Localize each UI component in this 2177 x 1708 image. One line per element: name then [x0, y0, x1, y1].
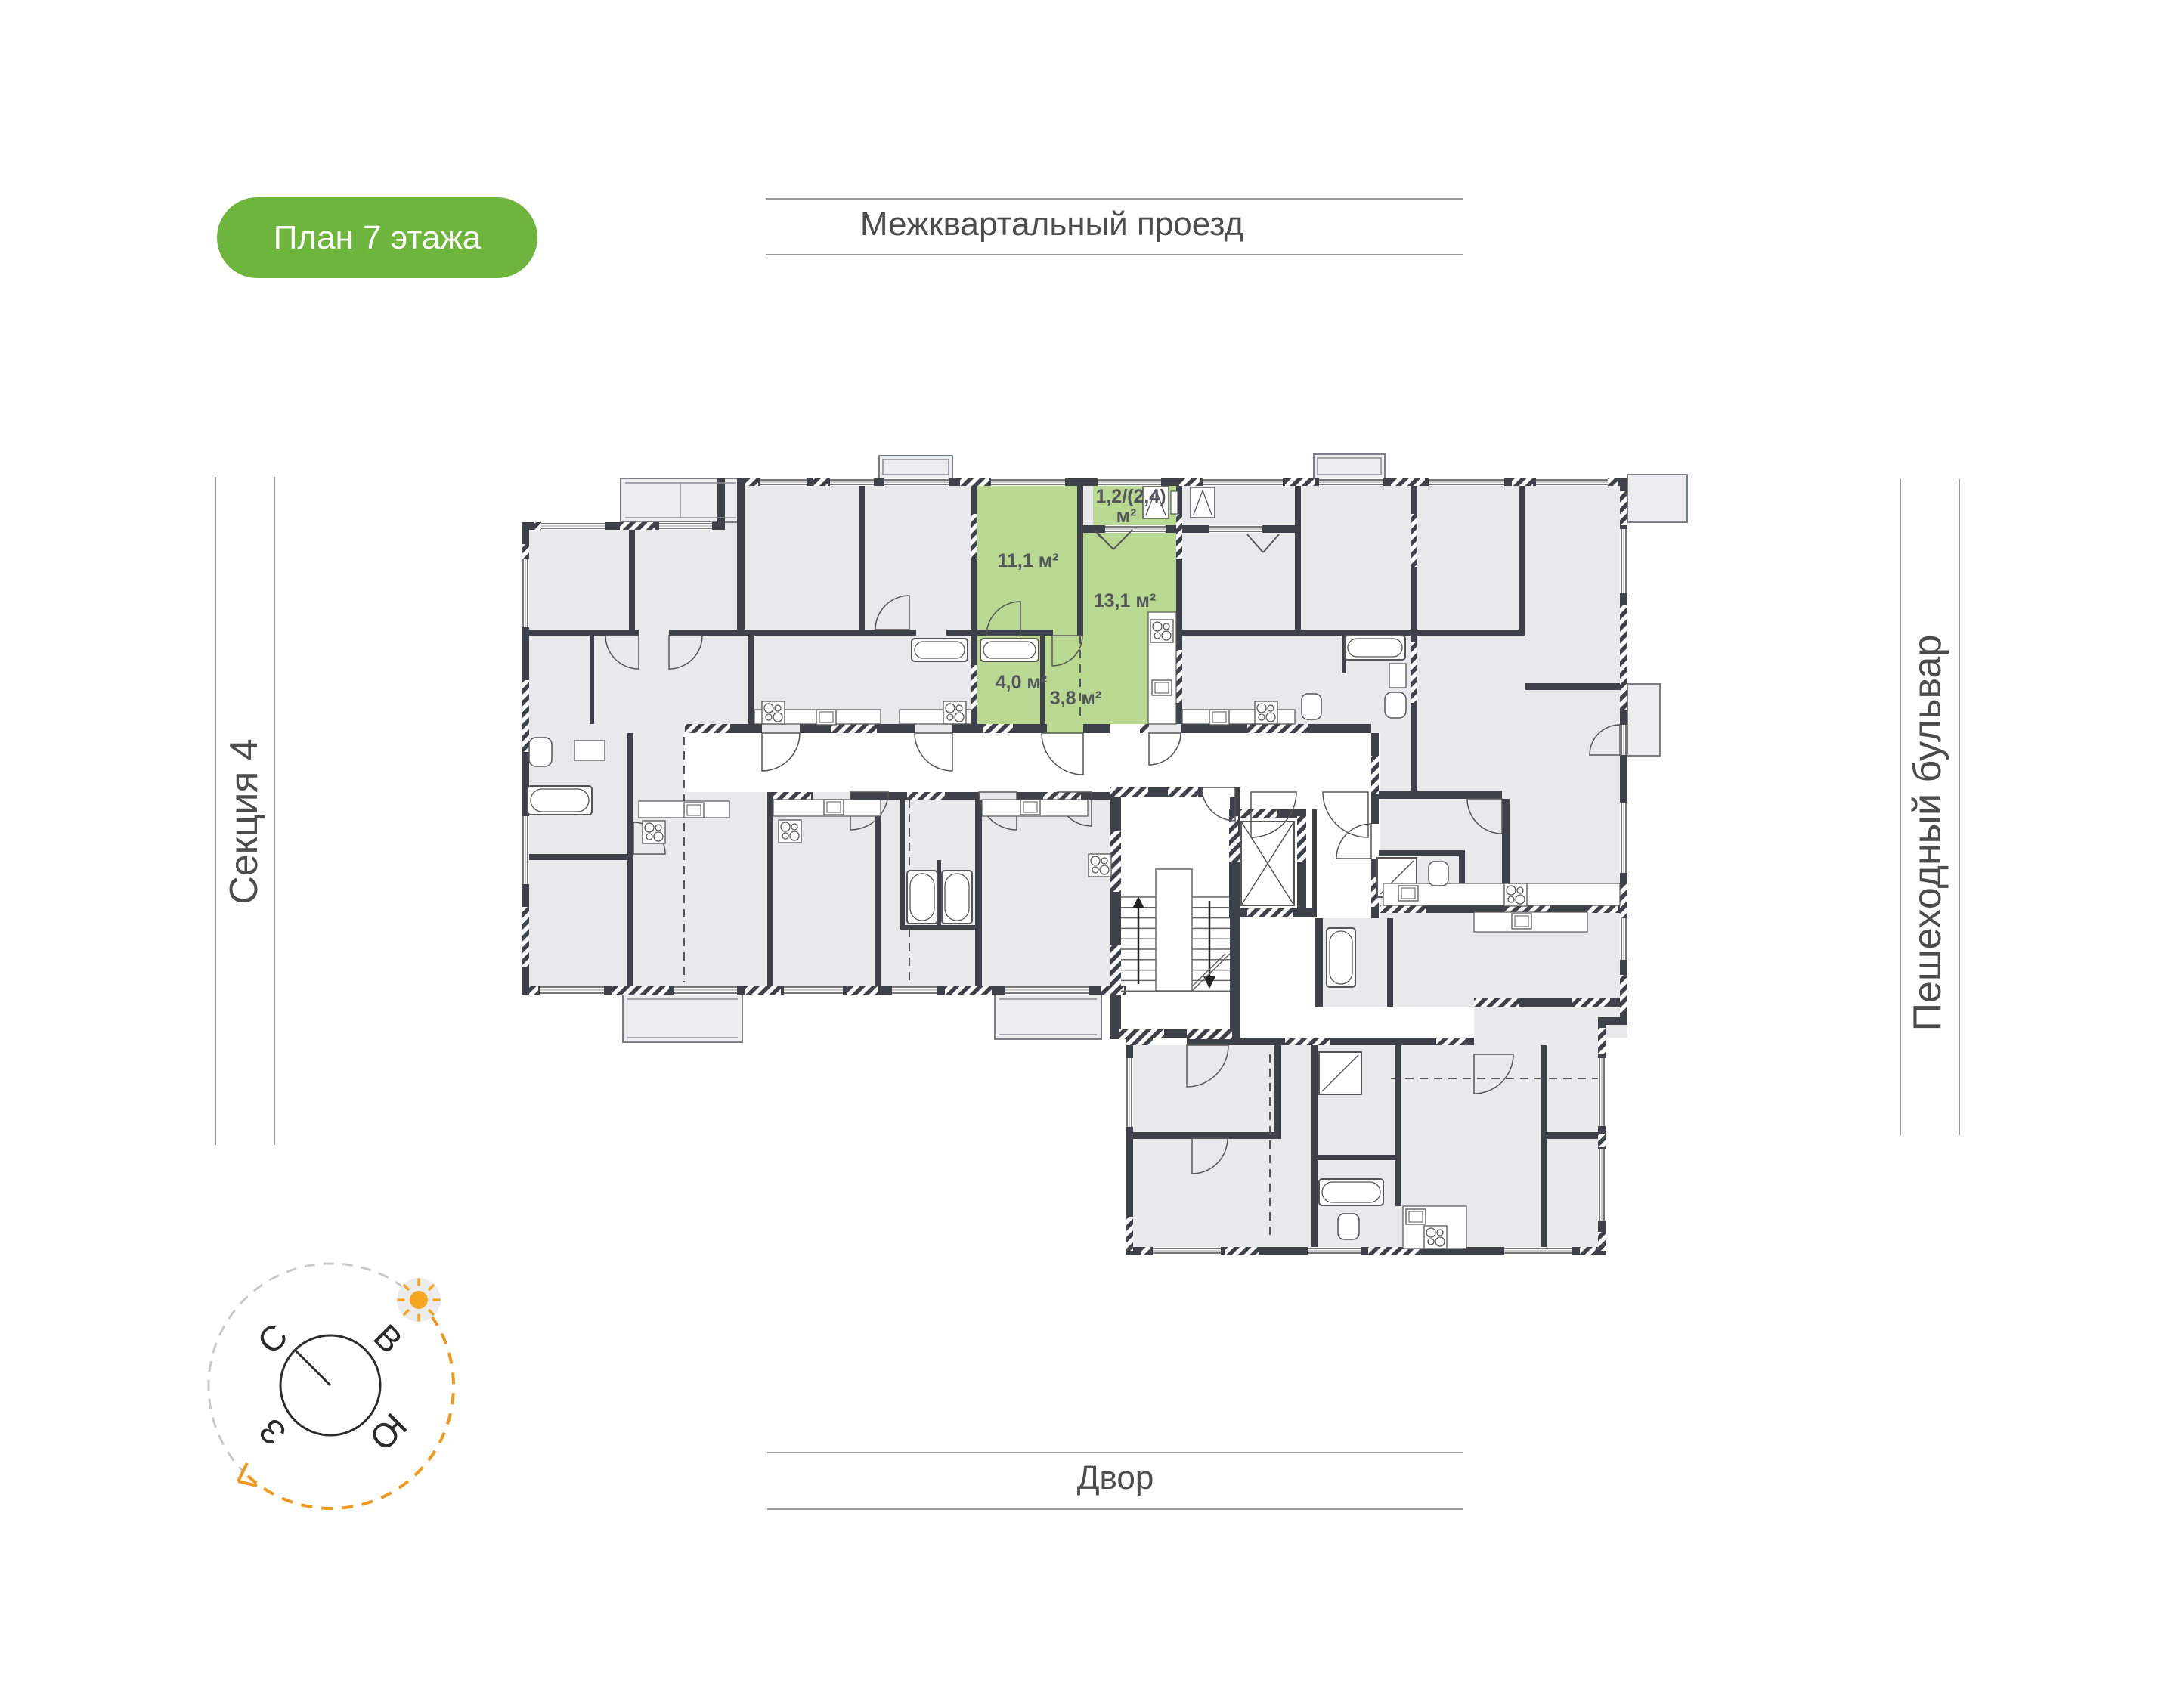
svg-text:3,8 м²: 3,8 м² [1050, 688, 1102, 709]
svg-text:4,0 м²: 4,0 м² [996, 672, 1048, 693]
svg-text:З: З [251, 1411, 293, 1453]
svg-text:11,1 м²: 11,1 м² [997, 550, 1058, 571]
svg-text:1,2/(2,4): 1,2/(2,4) [1095, 486, 1166, 507]
svg-text:13,1 м²: 13,1 м² [1094, 590, 1156, 611]
svg-text:С: С [249, 1316, 295, 1361]
svg-text:В: В [366, 1317, 410, 1360]
svg-text:м²: м² [1116, 506, 1137, 527]
